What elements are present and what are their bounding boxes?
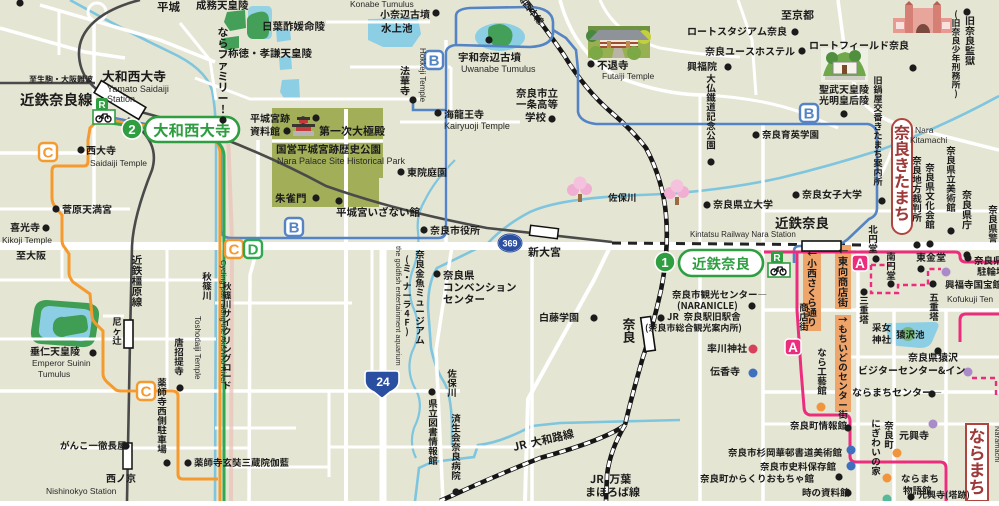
- svg-text:B: B: [429, 53, 440, 70]
- svg-text:Station: Station: [107, 94, 135, 104]
- svg-text:2: 2: [128, 122, 135, 137]
- svg-text:369: 369: [502, 239, 517, 249]
- svg-text:A: A: [855, 256, 865, 271]
- svg-text:Uwanabe Tumulus: Uwanabe Tumulus: [461, 64, 536, 74]
- svg-text:Kairyuoji Temple: Kairyuoji Temple: [444, 121, 510, 131]
- svg-text:D: D: [248, 242, 259, 259]
- svg-text:Nara Palace Site Historical Pa: Nara Palace Site Historical Park: [277, 156, 406, 166]
- svg-text:Kintatsu Railway Nara Station: Kintatsu Railway Nara Station: [690, 230, 796, 239]
- svg-text:Nara: Nara: [915, 125, 934, 135]
- svg-text:Naramachi: Naramachi: [993, 426, 999, 463]
- svg-text:Yamato Saidaiji: Yamato Saidaiji: [107, 84, 169, 94]
- svg-text:Konabe Tumulus: Konabe Tumulus: [350, 0, 414, 9]
- svg-text:Emperor Suinin: Emperor Suinin: [32, 358, 91, 368]
- svg-text:Nishinokyo Station: Nishinokyo Station: [46, 486, 117, 496]
- svg-text:Kofukuji Ten: Kofukuji Ten: [947, 294, 993, 304]
- svg-text:the goldfish entertainment aqu: the goldfish entertainment aquarium: [394, 246, 403, 366]
- svg-text:Futaiji Temple: Futaiji Temple: [602, 71, 655, 81]
- svg-text:Toshodaiji Temple: Toshodaiji Temple: [193, 316, 202, 380]
- svg-text:C: C: [43, 145, 54, 162]
- svg-text:Hokkeji Temple: Hokkeji Temple: [418, 48, 427, 103]
- svg-text:A: A: [788, 340, 798, 355]
- svg-text:Saidaiji Temple: Saidaiji Temple: [90, 158, 147, 168]
- svg-text:Kikoji Temple: Kikoji Temple: [2, 235, 52, 245]
- svg-text:C: C: [229, 242, 240, 259]
- svg-text:C: C: [141, 384, 152, 401]
- svg-text:B: B: [289, 220, 300, 237]
- svg-text:1: 1: [661, 255, 668, 270]
- svg-text:Tumulus: Tumulus: [38, 369, 70, 379]
- svg-text:Kitamachi: Kitamachi: [910, 135, 947, 145]
- svg-text:24: 24: [376, 375, 390, 389]
- svg-text:Cycling path along the Akishin: Cycling path along the Akishino River: [219, 260, 228, 384]
- svg-text:B: B: [804, 106, 815, 123]
